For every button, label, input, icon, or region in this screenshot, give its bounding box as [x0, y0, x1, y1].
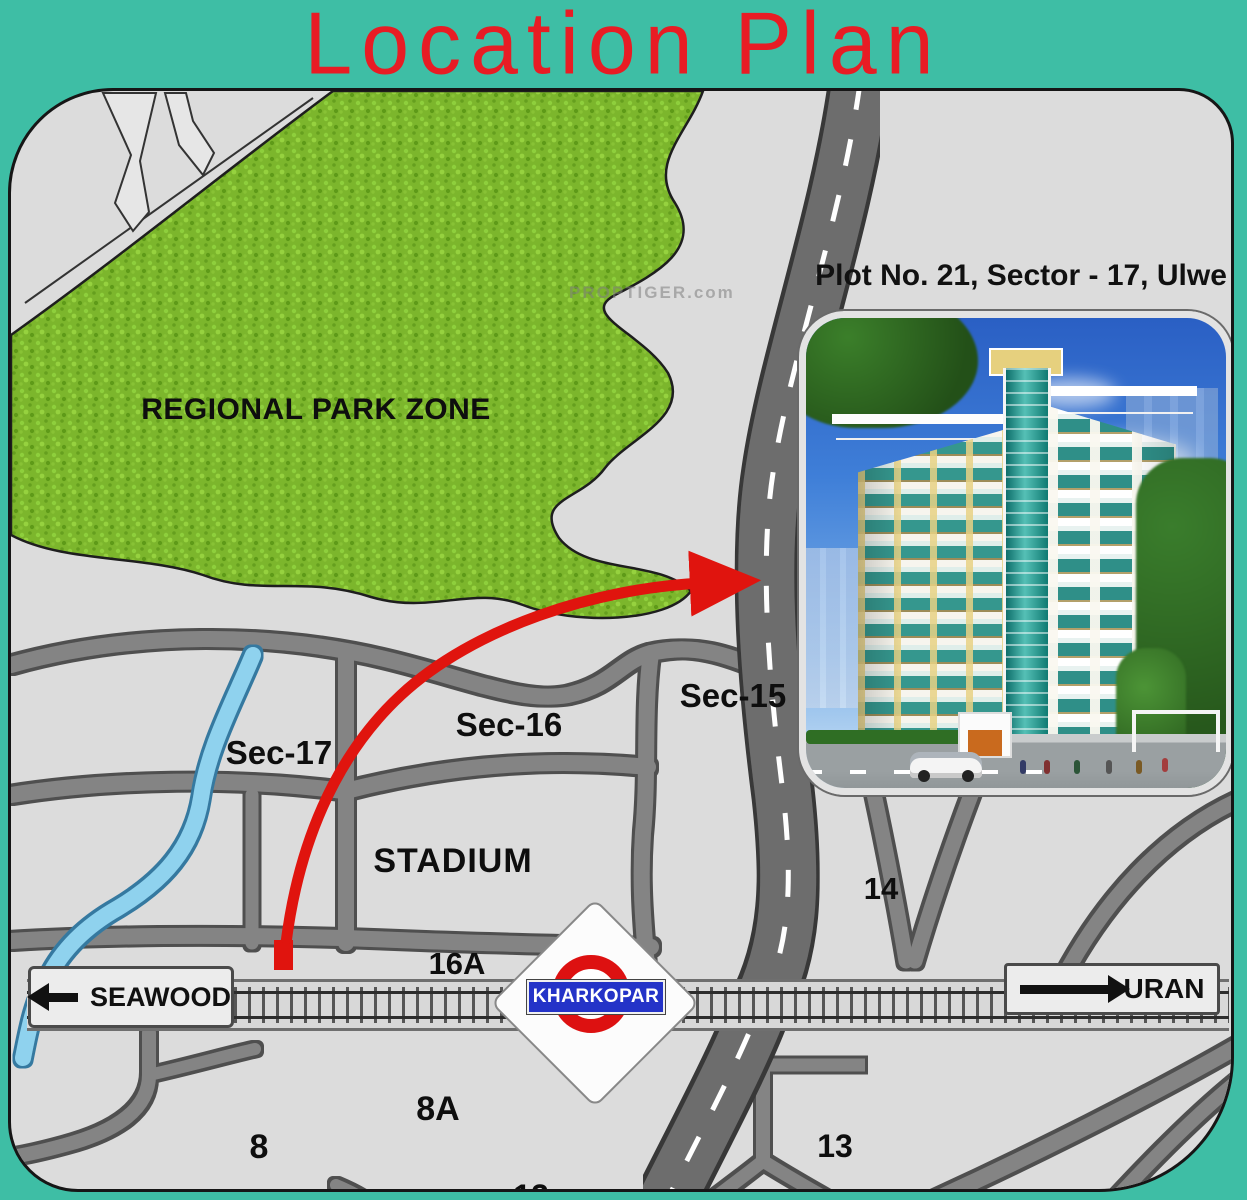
page-title: Location Plan [304, 0, 942, 88]
title-band: Location Plan [0, 0, 1247, 88]
person [1074, 760, 1080, 774]
person [1162, 758, 1168, 772]
label-sec-15: Sec-15 [663, 678, 803, 714]
person [1020, 760, 1026, 774]
compound-gate [1132, 710, 1220, 752]
car-wheel [962, 770, 974, 782]
building-glass-core [1003, 368, 1051, 756]
right-arrow-icon [1020, 985, 1108, 994]
person [1136, 760, 1142, 774]
label-regional-park-zone: REGIONAL PARK ZONE [111, 393, 521, 426]
sign-uran-label: URAN [1124, 973, 1205, 1005]
person [1106, 760, 1112, 774]
tree-foliage [799, 311, 978, 428]
label-13: 13 [793, 1129, 877, 1164]
sign-uran: URAN [1004, 963, 1220, 1015]
regional-park-shape [11, 91, 703, 618]
roof-pergola [1045, 386, 1197, 396]
building-inset-image [799, 311, 1233, 795]
watermark: PROPTIGER.com [569, 283, 735, 303]
label-stadium: STADIUM [361, 843, 545, 880]
label-sec-16: Sec-16 [439, 707, 579, 743]
person [1044, 760, 1050, 774]
label-8: 8 [217, 1129, 301, 1166]
sign-seawood: SEAWOOD [28, 966, 234, 1028]
sign-seawood-label: SEAWOOD [90, 982, 231, 1013]
roof-pergola [832, 414, 1004, 424]
location-plan-page: { "title": "Location Plan", "watermark":… [0, 0, 1247, 1200]
location-map: REGIONAL PARK ZONE Sec-17 Sec-16 Sec-15 … [8, 88, 1234, 1192]
label-12: 12 [489, 1179, 573, 1192]
station-name-banner: KHARKOPAR [527, 980, 665, 1014]
label-8a: 8A [393, 1091, 483, 1128]
label-16a: 16A [415, 947, 499, 981]
left-arrow-icon [49, 993, 78, 1002]
building-tower-left [858, 430, 1003, 756]
site-marker [274, 940, 293, 970]
label-14: 14 [839, 872, 923, 906]
label-sec-17: Sec-17 [209, 735, 349, 771]
inset-caption: Plot No. 21, Sector - 17, Ulwe [803, 259, 1234, 293]
car-wheel [918, 770, 930, 782]
